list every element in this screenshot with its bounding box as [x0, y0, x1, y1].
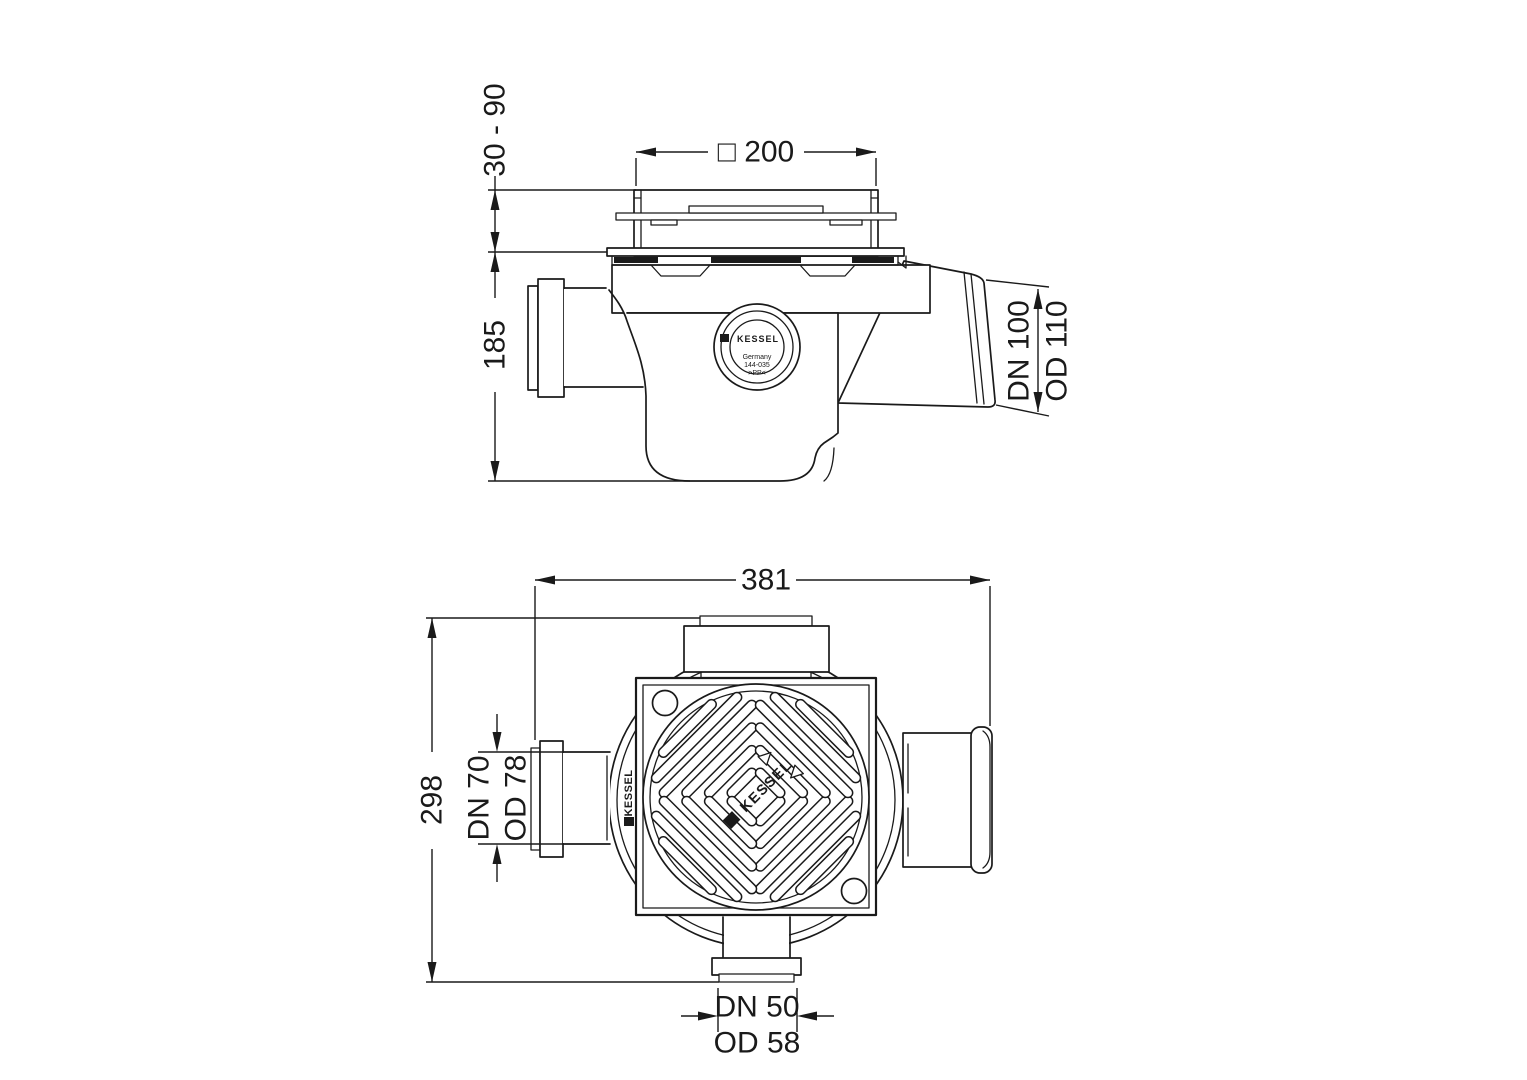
drain-technical-drawing: KESSEL Germany 144-035 >PP< [0, 0, 1527, 1080]
label-country: Germany [743, 354, 772, 361]
dim-text-left-inlet-dn: DN 70 [463, 755, 496, 840]
dim-text-overall-width: 381 [741, 564, 791, 597]
side-view: KESSEL Germany 144-035 >PP< [479, 83, 1074, 481]
plan-top-inlet [684, 616, 829, 682]
technical-drawing-page: KESSEL Germany 144-035 >PP< [0, 0, 1527, 1080]
plan-outlet-pipe [903, 727, 992, 873]
dim-bottom-inlet: DN 50 OD 58 [681, 988, 834, 1060]
dim-height-adjustable: 30 - 90 [479, 83, 637, 252]
kessel-logo-icon [720, 334, 729, 342]
plan-bottom-inlet [712, 917, 801, 982]
plan-view: KESSEL KESSEL [416, 564, 993, 1060]
dim-text-body-height: 185 [479, 320, 512, 370]
label-mold-number: 144-035 [744, 362, 770, 369]
rim-brand-text: KESSEL [623, 769, 635, 816]
dim-text-outlet-od: OD 110 [1041, 300, 1074, 401]
side-sump [609, 290, 838, 481]
plan-rim-brand: KESSEL [623, 769, 635, 826]
dim-text-overall-depth: 298 [416, 775, 449, 825]
socket-collar [538, 279, 564, 397]
dim-text-left-inlet-od: OD 78 [500, 755, 533, 842]
plan-left-inlet [531, 741, 610, 857]
dim-text-outlet-dn: DN 100 [1003, 300, 1036, 402]
screw-top-left [653, 691, 678, 716]
label-brand: KESSEL [737, 334, 779, 344]
dim-text-cover-width: □ 200 [718, 136, 795, 169]
label-material: >PP< [748, 370, 766, 377]
side-kessel-label: KESSEL Germany 144-035 >PP< [714, 304, 800, 390]
dim-text-bottom-inlet-od: OD 58 [714, 1027, 801, 1060]
dim-cover-width: □ 200 [636, 136, 876, 187]
dim-text-height-adjustable: 30 - 90 [479, 83, 512, 176]
dim-outlet: DN 100 OD 110 [986, 280, 1074, 416]
kessel-logo-icon [624, 817, 634, 826]
socket-washer [528, 286, 538, 390]
screw-bottom-right [842, 879, 867, 904]
plan-grate: KESSEL [643, 684, 869, 910]
dim-text-bottom-inlet-dn: DN 50 [714, 991, 799, 1024]
